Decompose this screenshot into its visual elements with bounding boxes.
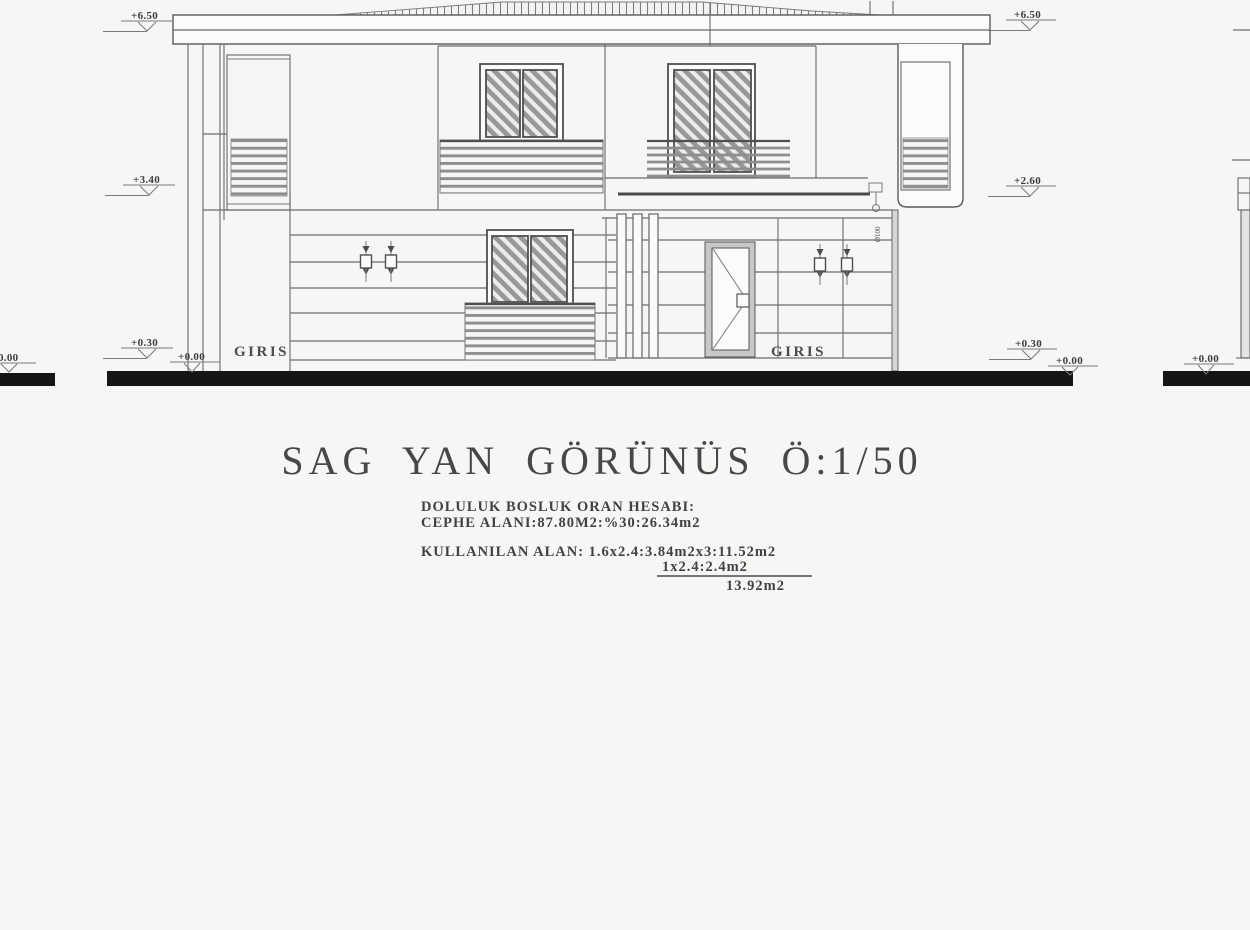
door-handle: [737, 294, 749, 307]
drawing-title: SAG YAN GÖRÜNÜS Ö:1/50: [281, 438, 922, 483]
ground-window: [487, 230, 573, 308]
ground-floor: GIRIS: [234, 193, 898, 371]
roof-tiles: [335, 2, 880, 15]
left-shutter-panel: [227, 55, 290, 210]
window-sash: [674, 70, 710, 172]
balcony-drain: [869, 183, 882, 212]
calc-total: 13.92m2: [726, 578, 785, 594]
svg-text:+6.50: +6.50: [131, 10, 158, 22]
elevation-marker: +6.50: [988, 9, 1056, 31]
right-corner-wall: [892, 210, 898, 371]
svg-text:+3.40: +3.40: [133, 174, 160, 186]
upper-right-window: [668, 64, 755, 177]
calc-facade-area: CEPHE ALANI:87.80M2:%30:26.34m2: [421, 515, 701, 531]
svg-text:+0.30: +0.30: [1015, 338, 1042, 350]
ground-line: [0, 371, 1250, 386]
upper-left-window: [480, 64, 563, 143]
svg-text:+2.60: +2.60: [1014, 175, 1041, 187]
calc-block: DOLULUK BOSLUK ORAN HESABI: CEPHE ALANI:…: [421, 499, 812, 594]
elevation-marker: +0.00: [1184, 353, 1234, 374]
pipe-note-label: Ø100: [874, 226, 882, 242]
window-sash: [531, 236, 567, 302]
svg-text:-0.00: -0.00: [0, 352, 19, 364]
upper-left-balcony-railing: [440, 140, 603, 193]
window-sash: [486, 70, 520, 137]
svg-text:+0.00: +0.00: [1056, 355, 1083, 367]
calc-heading: DOLULUK BOSLUK ORAN HESABI:: [421, 499, 695, 515]
elevation-marker: +6.50: [103, 10, 173, 32]
elevation-marker: +0.30: [989, 338, 1057, 360]
entrance-label-right: GIRIS: [771, 344, 826, 360]
adjacent-structure-cut: [1232, 30, 1250, 358]
wall-lamp: [386, 241, 397, 282]
title-block: SAG YAN GÖRÜNÜS Ö:1/50: [281, 438, 922, 483]
window-sill-louvers: [465, 303, 595, 360]
svg-text:+0.30: +0.30: [131, 337, 158, 349]
mullion-strips: [617, 214, 658, 358]
wall-lamp: [361, 241, 372, 282]
elevation-marker: +3.40: [105, 174, 175, 196]
svg-text:+6.50: +6.50: [1014, 9, 1041, 21]
right-wall-panel: [898, 44, 963, 207]
entrance-label-left: GIRIS: [234, 344, 289, 360]
blueprint-page: GIRIS: [0, 0, 1250, 930]
calc-used-area-2: 1x2.4:2.4m2: [662, 559, 748, 575]
wall-lamp: [815, 244, 826, 285]
elevation-marker: +2.60: [988, 175, 1056, 197]
entrance-door: [705, 242, 755, 357]
elevation-marker: +0.30: [103, 337, 173, 359]
elevation-drawing-canvas: GIRIS: [0, 0, 1250, 930]
roof: [173, 1, 990, 46]
window-sash: [492, 236, 528, 302]
elevation-marker: -0.00: [0, 352, 36, 372]
svg-text:+0.00: +0.00: [178, 351, 205, 363]
window-sash: [523, 70, 557, 137]
calc-used-area: KULLANILAN ALAN: 1.6x2.4:3.84m2x3:11.52m…: [421, 544, 776, 560]
svg-text:+0.00: +0.00: [1192, 353, 1219, 365]
elevation-marker: +0.00: [170, 351, 220, 372]
window-sash: [714, 70, 751, 172]
